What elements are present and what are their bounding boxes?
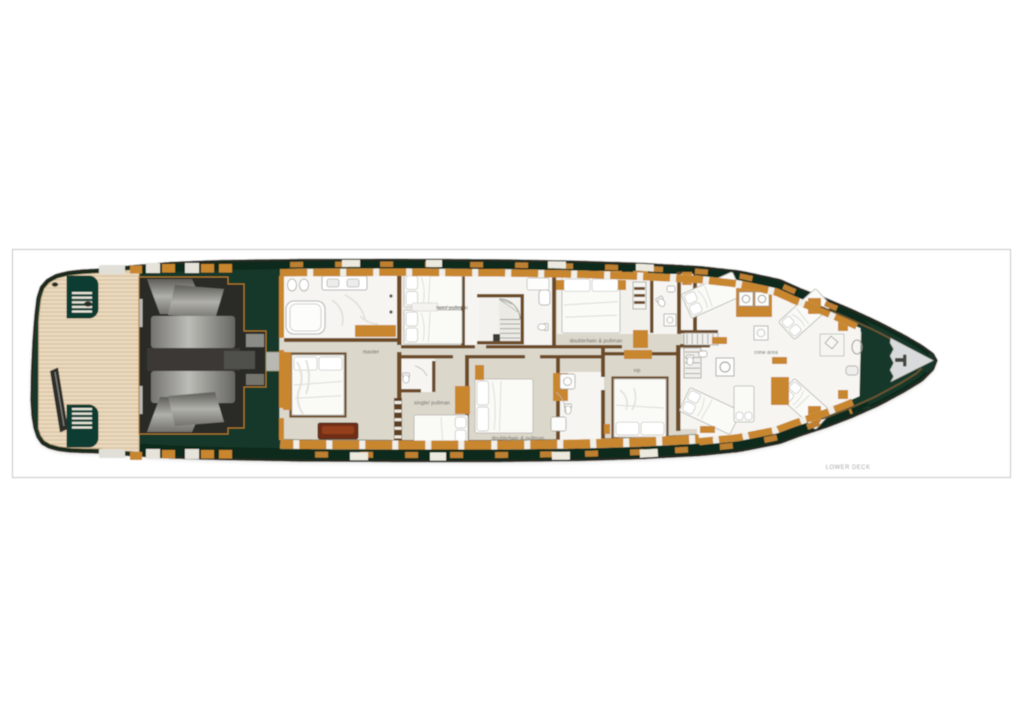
svg-text:crew area: crew area [754, 350, 778, 356]
svg-text:double/twin & pullman: double/twin & pullman [492, 436, 545, 442]
svg-text:vip: vip [634, 368, 641, 374]
svg-text:master: master [363, 350, 380, 356]
svg-text:single/ pullman: single/ pullman [414, 401, 450, 407]
svg-text:twin/ pullman: twin/ pullman [436, 306, 468, 312]
svg-text:double/twin & pullman: double/twin & pullman [570, 339, 623, 345]
svg-text:LOWER DECK: LOWER DECK [826, 465, 871, 471]
